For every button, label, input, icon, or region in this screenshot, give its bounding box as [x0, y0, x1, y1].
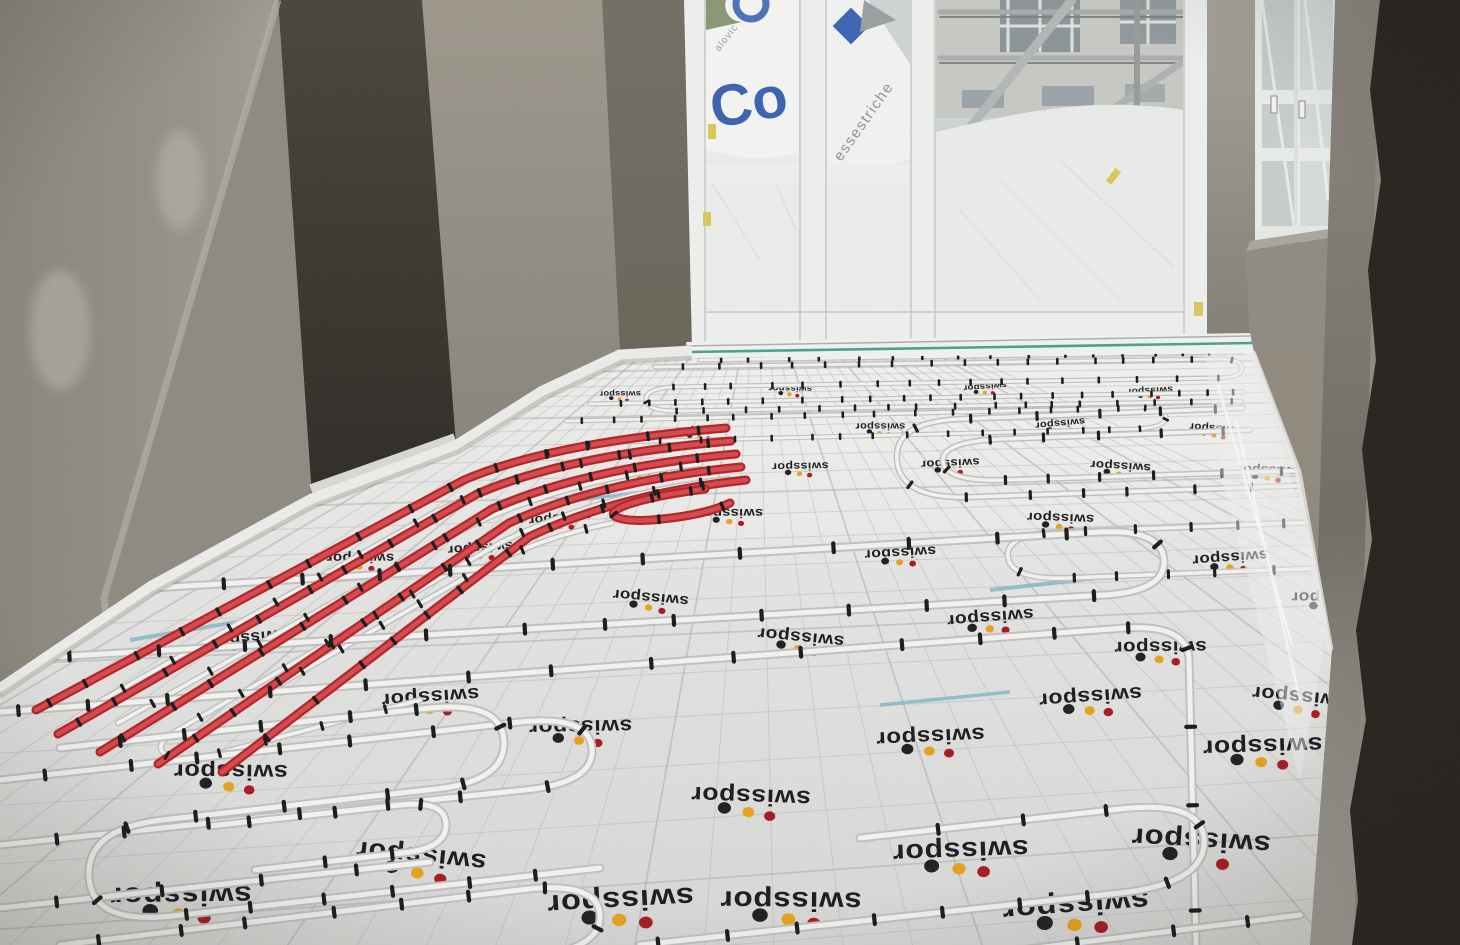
underfloor-heating-scene: alovic Co essestriche: [0, 0, 1460, 945]
grain-texture: [0, 0, 1460, 945]
construction-room-photo: alovic Co essestriche: [0, 0, 1460, 945]
